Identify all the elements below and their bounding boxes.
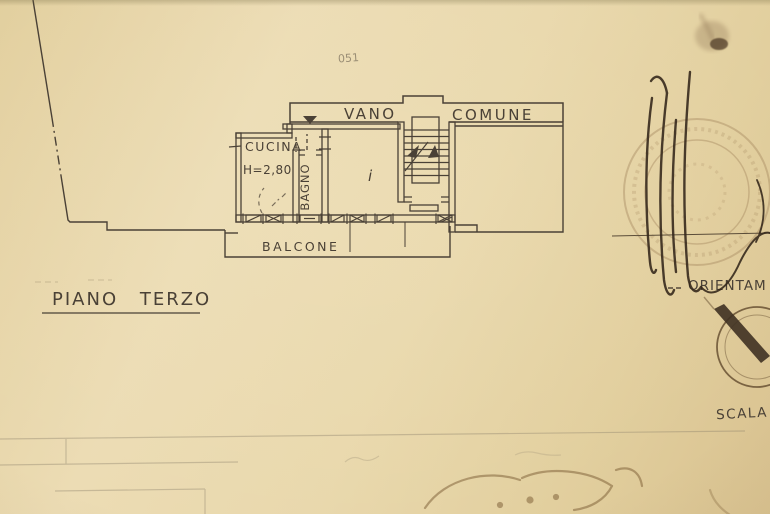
site-boundary-line	[33, 0, 225, 230]
floor-title: PIANO TERZO	[52, 289, 211, 310]
bathroom-label: BAGNO	[298, 163, 312, 210]
corridor-label-comune: COMUNE	[452, 106, 534, 124]
stair-up-arrowhead	[428, 145, 439, 158]
kitchen-height-note: H=2,80	[243, 163, 292, 177]
kitchen-door-swing-dashes	[259, 188, 287, 213]
balcony-label: BALCONE	[262, 239, 339, 254]
ink-smudge	[695, 14, 729, 51]
common-hall-outline	[455, 122, 563, 232]
bottom-partial-stamp	[425, 468, 770, 514]
floorplan-drawing: VANO COMUNE CUCINA H=2,80 BAGNO i BALCON…	[0, 0, 770, 514]
scanned-floorplan-photo: VANO COMUNE CUCINA H=2,80 BAGNO i BALCON…	[0, 0, 770, 514]
faint-title-dashes	[35, 280, 112, 282]
scale-label: SCALA	[716, 405, 769, 424]
orientation-label: ORIENTAM	[688, 278, 767, 294]
floor-title-block: PIANO TERZO	[35, 280, 211, 313]
faint-table-lines	[0, 431, 745, 514]
kitchen-label: CUCINA	[245, 139, 302, 154]
faint-note: 051	[338, 51, 360, 65]
signature-scribble	[646, 72, 770, 295]
compass-icon	[704, 297, 770, 387]
entrance-door-marker	[303, 116, 317, 124]
main-room-mark: i	[368, 167, 373, 185]
corridor-label-vano: VANO	[344, 105, 397, 123]
